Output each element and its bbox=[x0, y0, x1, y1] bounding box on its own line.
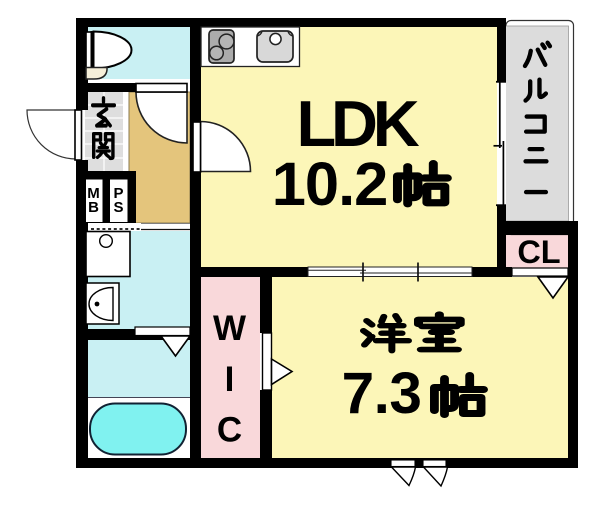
svg-text:10.2: 10.2 bbox=[272, 150, 388, 219]
svg-text:I: I bbox=[225, 360, 235, 399]
svg-text:S: S bbox=[113, 199, 123, 216]
svg-text:W: W bbox=[213, 309, 246, 348]
svg-text:CL: CL bbox=[517, 234, 560, 270]
svg-text:7.3: 7.3 bbox=[342, 361, 422, 426]
svg-text:C: C bbox=[217, 411, 242, 450]
svg-text:B: B bbox=[88, 199, 99, 216]
